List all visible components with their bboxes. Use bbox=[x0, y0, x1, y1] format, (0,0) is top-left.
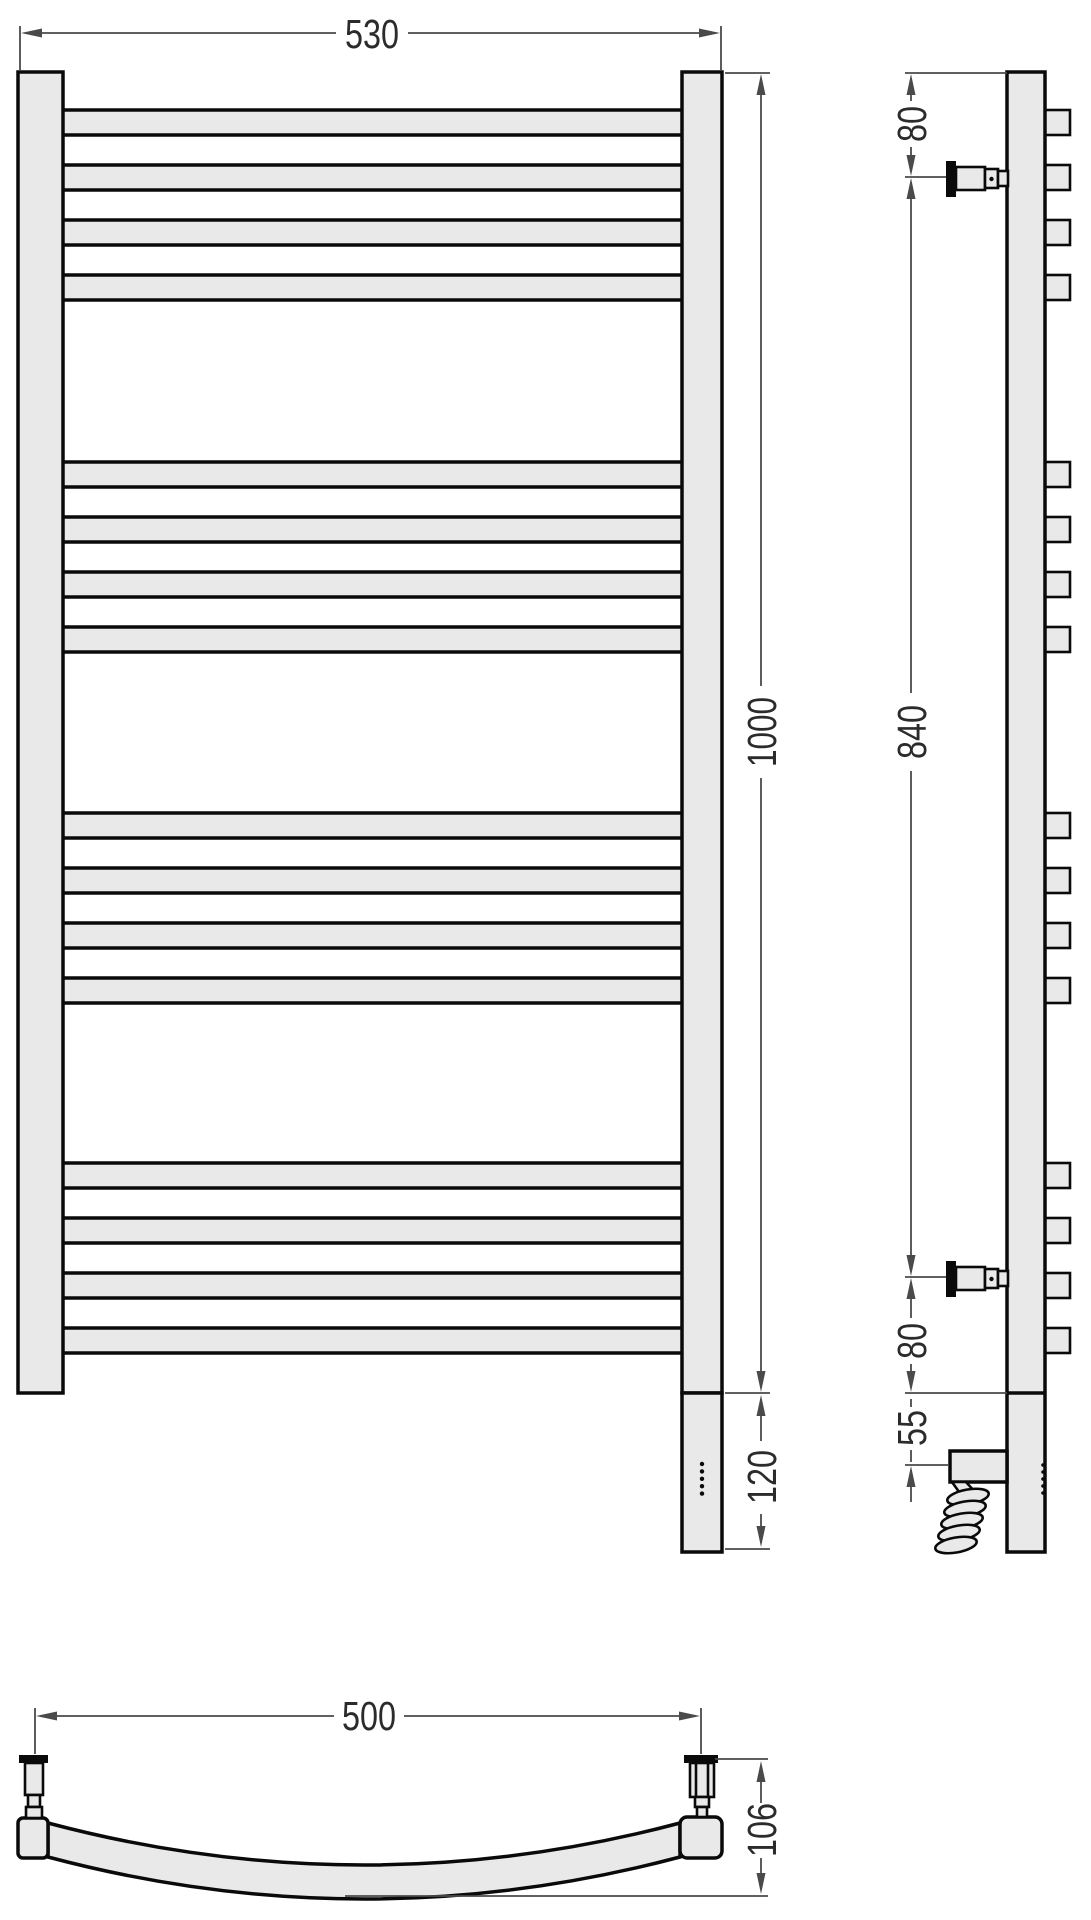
rung bbox=[61, 220, 684, 245]
heater-housing bbox=[950, 1451, 1007, 1482]
front-left-post bbox=[18, 72, 63, 1393]
arrow-left bbox=[21, 29, 42, 38]
rung bbox=[61, 627, 684, 652]
rung bbox=[61, 813, 684, 838]
rung bbox=[61, 868, 684, 893]
rung-end bbox=[1044, 110, 1070, 135]
dim-55: 55 bbox=[889, 1399, 949, 1502]
dim-500-label: 500 bbox=[342, 1693, 396, 1739]
rung-end bbox=[1044, 572, 1070, 597]
dim-80-top-label: 80 bbox=[889, 106, 935, 142]
rung bbox=[61, 1273, 684, 1298]
bracket-flange bbox=[946, 161, 956, 197]
arrow-up bbox=[907, 74, 916, 95]
indicator-dot bbox=[1041, 1484, 1045, 1488]
side-rung-ends bbox=[1044, 110, 1070, 1353]
arrow-right bbox=[699, 29, 720, 38]
towel-rail-drawing: 530 1000 120 80 bbox=[0, 0, 1091, 1920]
rung-end bbox=[1044, 517, 1070, 542]
bottom-left-valve bbox=[18, 1755, 48, 1858]
rung bbox=[61, 517, 684, 542]
rung bbox=[61, 572, 684, 597]
arrow-down bbox=[757, 1873, 766, 1894]
arrow-up bbox=[757, 1395, 766, 1416]
rung bbox=[61, 978, 684, 1003]
rung-end bbox=[1044, 813, 1070, 838]
arrow-down bbox=[757, 1526, 766, 1547]
arrow-up bbox=[907, 1466, 916, 1487]
rung bbox=[61, 110, 684, 135]
rung bbox=[61, 165, 684, 190]
bracket-body bbox=[956, 1267, 985, 1290]
side-post bbox=[1007, 72, 1045, 1552]
dim-120: 120 bbox=[725, 1393, 785, 1549]
drawing-page: 530 1000 120 80 bbox=[0, 0, 1091, 1920]
arrow-down bbox=[907, 1371, 916, 1392]
wall-bracket-bottom bbox=[946, 1261, 1008, 1297]
indicator-dot bbox=[1041, 1463, 1045, 1467]
bracket-pin bbox=[989, 1277, 993, 1281]
rung-end bbox=[1044, 868, 1070, 893]
dim-1000: 1000 bbox=[725, 73, 785, 1392]
cable-coil bbox=[934, 1486, 990, 1556]
arrow-left bbox=[36, 1712, 57, 1721]
arrow-up bbox=[757, 1761, 766, 1782]
rung-end bbox=[1044, 275, 1070, 300]
indicator-dot bbox=[1041, 1470, 1045, 1474]
indicator-dot bbox=[700, 1491, 704, 1495]
curved-tube bbox=[48, 1823, 680, 1899]
rung bbox=[61, 1218, 684, 1243]
dim-1000-label: 1000 bbox=[739, 697, 785, 767]
side-view bbox=[934, 72, 1070, 1556]
rung bbox=[61, 462, 684, 487]
rung bbox=[61, 1328, 684, 1353]
rung-end bbox=[1044, 220, 1070, 245]
rung-end bbox=[1044, 1273, 1070, 1298]
arrow-down bbox=[907, 1255, 916, 1276]
dim-120-label: 120 bbox=[739, 1450, 785, 1504]
bracket-flange bbox=[946, 1261, 956, 1297]
arrow-down bbox=[757, 1371, 766, 1392]
front-view bbox=[18, 72, 722, 1552]
dim-80-bottom-label: 80 bbox=[889, 1323, 935, 1359]
indicator-dot bbox=[700, 1462, 704, 1466]
valve-neck bbox=[695, 1797, 709, 1807]
indicator-dot bbox=[700, 1484, 704, 1488]
rung bbox=[61, 923, 684, 948]
dim-500: 500 bbox=[35, 1693, 701, 1754]
rung-end bbox=[1044, 978, 1070, 1003]
dim-55-label: 55 bbox=[889, 1410, 935, 1446]
bottom-right-valve bbox=[680, 1755, 722, 1858]
arrow-right bbox=[679, 1712, 700, 1721]
valve-base bbox=[26, 1807, 42, 1818]
bottom-view bbox=[18, 1755, 722, 1899]
valve-body bbox=[25, 1763, 43, 1795]
rung bbox=[61, 1163, 684, 1188]
arrow-down bbox=[907, 155, 916, 176]
rung bbox=[61, 275, 684, 300]
bracket-stub bbox=[998, 1271, 1008, 1286]
rung-end bbox=[1044, 923, 1070, 948]
indicator-dot bbox=[1041, 1491, 1045, 1495]
front-rungs bbox=[61, 110, 684, 1353]
dim-840-label: 840 bbox=[889, 705, 935, 759]
rung-end bbox=[1044, 1328, 1070, 1353]
bracket-body bbox=[956, 167, 985, 190]
arrow-up bbox=[907, 1278, 916, 1299]
dim-530: 530 bbox=[20, 11, 721, 70]
corner-block bbox=[18, 1818, 48, 1858]
bracket-pin bbox=[989, 177, 993, 181]
rung-end bbox=[1044, 165, 1070, 190]
arrow-up bbox=[907, 178, 916, 199]
valve-body-inner bbox=[696, 1763, 708, 1797]
arrow-up bbox=[757, 74, 766, 95]
rung-end bbox=[1044, 1218, 1070, 1243]
corner-block bbox=[680, 1817, 722, 1858]
indicator-dot bbox=[700, 1469, 704, 1473]
indicator-dot bbox=[1041, 1477, 1045, 1481]
wall-bracket-top bbox=[946, 161, 1008, 197]
dim-106-label: 106 bbox=[739, 1803, 785, 1857]
rung-end bbox=[1044, 627, 1070, 652]
rung-end bbox=[1044, 1163, 1070, 1188]
valve-neck bbox=[28, 1795, 40, 1807]
dim-840: 840 bbox=[889, 178, 946, 1277]
bracket-stub bbox=[998, 171, 1008, 186]
indicator-dot bbox=[700, 1477, 704, 1481]
valve-base bbox=[697, 1807, 707, 1817]
dim-530-label: 530 bbox=[345, 11, 399, 57]
rung-end bbox=[1044, 462, 1070, 487]
front-right-post bbox=[682, 72, 722, 1393]
